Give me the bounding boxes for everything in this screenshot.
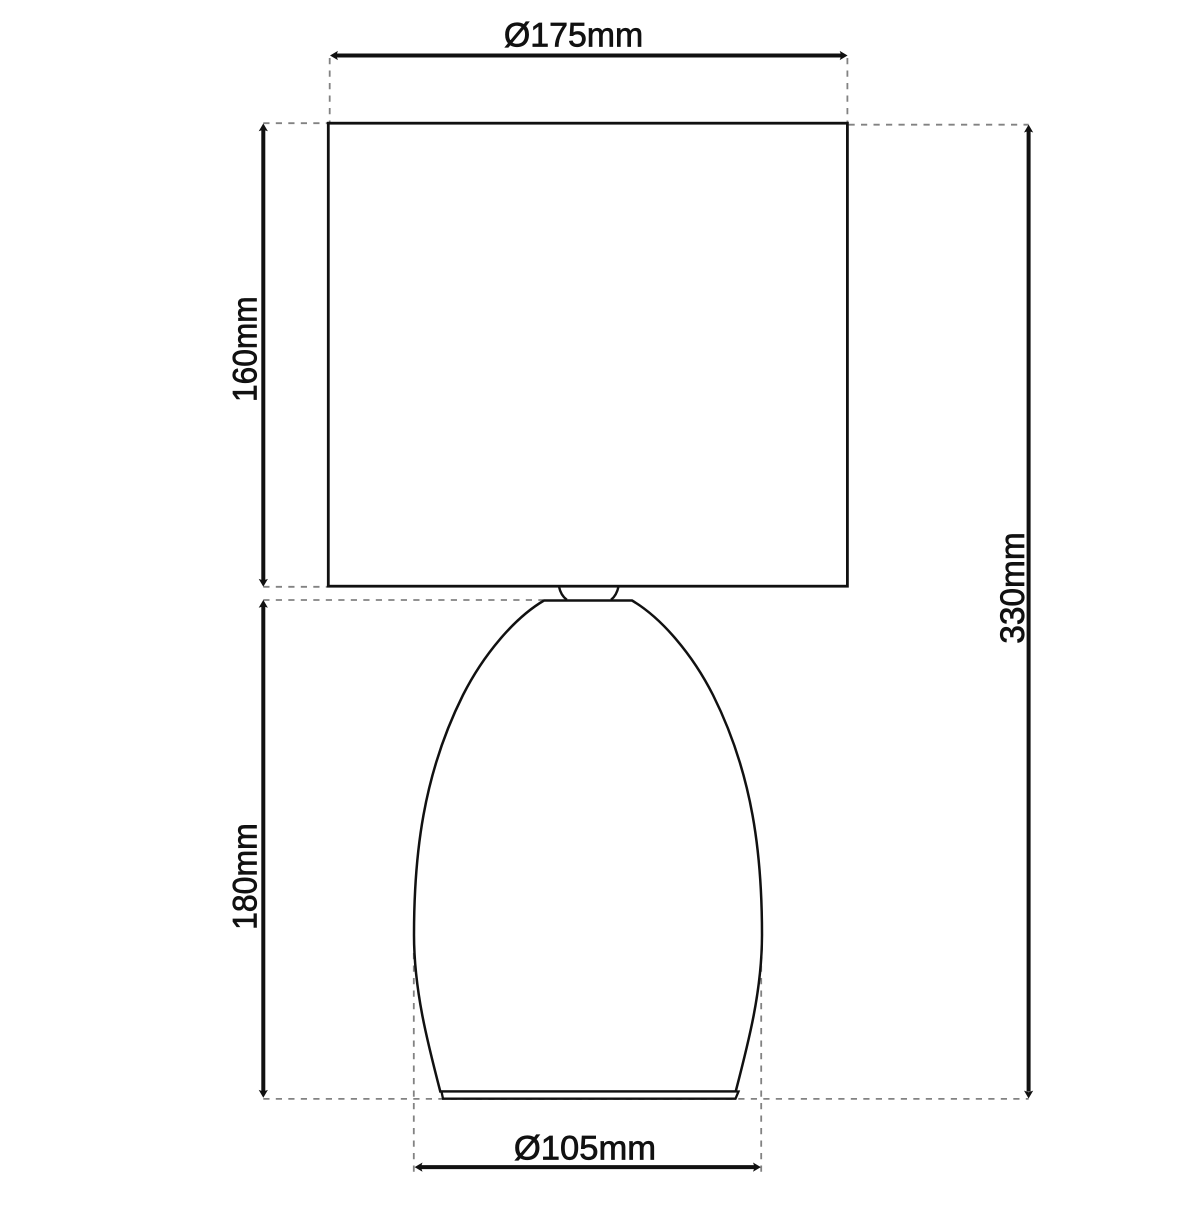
svg-text:180mm: 180mm <box>226 823 264 930</box>
svg-text:330mm: 330mm <box>994 532 1032 644</box>
svg-text:Ø105mm: Ø105mm <box>514 1130 656 1168</box>
svg-text:Ø175mm: Ø175mm <box>504 17 643 55</box>
svg-text:160mm: 160mm <box>226 296 264 402</box>
